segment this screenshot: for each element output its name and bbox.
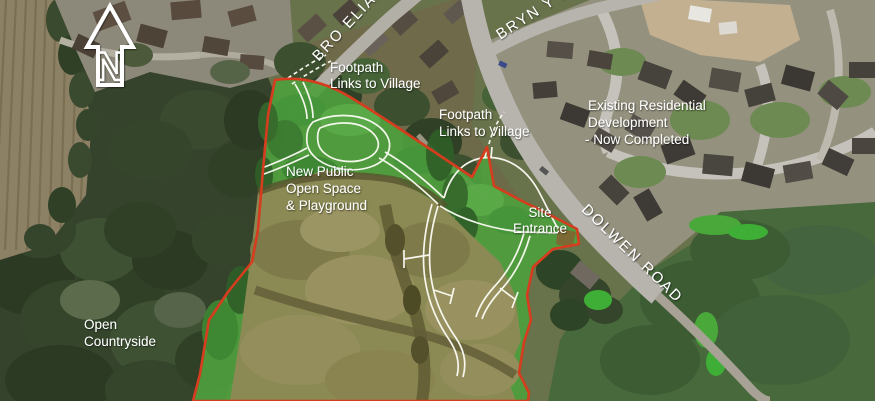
label-line: Open Space [286,181,361,196]
label-line: Links to Village [439,124,530,139]
label-line: Entrance [513,221,567,236]
label-line: Existing Residential [588,98,706,113]
aerial-map-canvas: N Footpath Links to Village Footpath Lin… [0,0,875,401]
north-letter: N [96,45,125,89]
label-line: - Now Completed [585,132,689,147]
label-line: Footpath [330,60,383,75]
label-line: & Playground [286,198,367,213]
label-line: Development [588,115,668,130]
label-line: New Public [286,164,354,179]
label-line: Open [84,317,117,332]
label-line: Site [528,205,551,220]
label-line: Countryside [84,334,156,349]
label-line: Footpath [439,107,492,122]
label-line: Links to Village [330,76,421,91]
site-plan-map: N Footpath Links to Village Footpath Lin… [0,0,875,401]
